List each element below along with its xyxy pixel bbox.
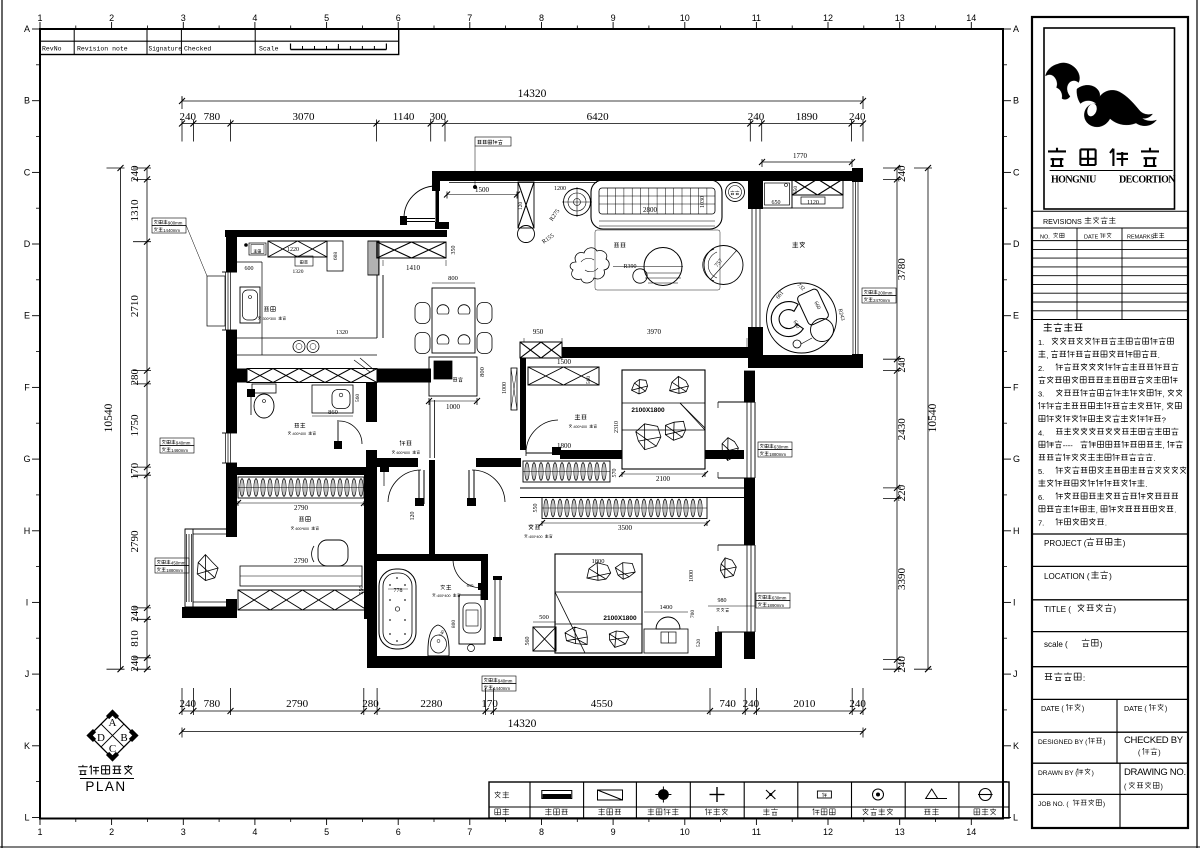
svg-text:650: 650 xyxy=(772,200,781,206)
svg-text:.: . xyxy=(1154,454,1156,463)
svg-text:1: 1 xyxy=(37,827,42,837)
svg-text:): ) xyxy=(1113,605,1116,614)
svg-text:H: H xyxy=(1013,526,1020,536)
svg-text:DATE (: DATE ( xyxy=(1124,705,1147,713)
svg-text:14: 14 xyxy=(966,827,976,837)
svg-text:2.: 2. xyxy=(1038,364,1044,373)
svg-text:240: 240 xyxy=(129,605,141,622)
svg-text:570: 570 xyxy=(612,469,618,478)
svg-text:1200: 1200 xyxy=(554,186,566,192)
svg-text:240: 240 xyxy=(129,655,141,672)
svg-text:800: 800 xyxy=(479,367,486,377)
svg-text:220: 220 xyxy=(896,484,908,501)
svg-text:A: A xyxy=(24,24,30,34)
svg-text:1320: 1320 xyxy=(293,269,304,275)
svg-text:450mm: 450mm xyxy=(171,560,186,565)
svg-text:11: 11 xyxy=(752,13,761,23)
svg-text:): ) xyxy=(1123,539,1126,548)
svg-text:13: 13 xyxy=(895,827,905,837)
svg-text:Revision note: Revision note xyxy=(77,46,128,53)
svg-text:200mm: 200mm xyxy=(878,290,893,295)
svg-text::400*400: :400*400 xyxy=(573,425,587,429)
svg-text:780: 780 xyxy=(204,698,221,710)
svg-text:3070: 3070 xyxy=(293,111,316,123)
svg-text:860: 860 xyxy=(328,409,338,416)
svg-text:14: 14 xyxy=(966,13,976,23)
svg-text:500: 500 xyxy=(539,614,549,621)
svg-text:900mm: 900mm xyxy=(168,220,183,225)
svg-text:REVISIONS: REVISIONS xyxy=(1043,218,1082,226)
svg-text:2430: 2430 xyxy=(896,418,908,441)
svg-text:2: 2 xyxy=(109,13,114,23)
svg-text:1460mm: 1460mm xyxy=(171,448,188,453)
svg-text:): ) xyxy=(1082,705,1084,713)
svg-text:6420: 6420 xyxy=(587,111,610,123)
svg-text:H: H xyxy=(24,526,31,536)
svg-text:F: F xyxy=(24,382,30,392)
svg-text:,: , xyxy=(1163,441,1165,450)
svg-text:240: 240 xyxy=(897,358,908,373)
svg-text:G: G xyxy=(23,454,30,464)
svg-text:2790: 2790 xyxy=(286,698,309,710)
svg-text:PLAN: PLAN xyxy=(85,779,126,794)
svg-text:1880mm: 1880mm xyxy=(166,568,183,573)
svg-text:240: 240 xyxy=(179,111,196,123)
svg-text:10540: 10540 xyxy=(103,403,115,432)
svg-text:): ) xyxy=(1161,783,1163,791)
svg-text:1500: 1500 xyxy=(475,186,490,194)
svg-text:950: 950 xyxy=(533,328,544,336)
svg-text:4.: 4. xyxy=(1038,428,1044,437)
svg-text:3780: 3780 xyxy=(896,258,908,281)
svg-text:2790: 2790 xyxy=(294,557,309,565)
svg-text:1890mm: 1890mm xyxy=(767,603,784,608)
svg-text:608: 608 xyxy=(333,252,339,261)
svg-text:1: 1 xyxy=(37,13,42,23)
svg-text:5: 5 xyxy=(324,13,329,23)
svg-text:560: 560 xyxy=(355,394,361,403)
svg-text:K: K xyxy=(24,741,30,751)
svg-text:.: . xyxy=(1105,519,1107,528)
svg-text::600*600: :600*600 xyxy=(295,527,309,531)
svg-text:13: 13 xyxy=(895,13,905,23)
svg-text:600: 600 xyxy=(245,266,254,272)
svg-text:1320: 1320 xyxy=(336,330,348,336)
svg-text:G: G xyxy=(1013,454,1020,464)
svg-text:L: L xyxy=(1013,813,1018,823)
svg-text:700: 700 xyxy=(690,610,696,619)
svg-text:610: 610 xyxy=(467,583,475,588)
svg-text:280: 280 xyxy=(129,369,141,386)
svg-text:10: 10 xyxy=(680,827,690,837)
svg-text:1800: 1800 xyxy=(592,558,605,565)
svg-text:240: 240 xyxy=(849,111,866,123)
svg-text:Checked: Checked xyxy=(184,46,211,53)
svg-text:9: 9 xyxy=(611,827,616,837)
svg-text:): ) xyxy=(1103,739,1105,746)
svg-text:120: 120 xyxy=(518,202,524,211)
svg-text:8: 8 xyxy=(539,13,544,23)
svg-text:11: 11 xyxy=(752,827,761,837)
svg-text:2790: 2790 xyxy=(294,504,309,512)
svg-text:1000: 1000 xyxy=(502,382,508,394)
svg-text:TITLE (: TITLE ( xyxy=(1044,605,1071,614)
svg-text:3.: 3. xyxy=(1038,390,1044,399)
svg-text:940mm: 940mm xyxy=(498,678,513,683)
svg-text:980: 980 xyxy=(718,598,727,604)
svg-text:J: J xyxy=(25,669,30,679)
svg-text:12: 12 xyxy=(823,13,833,23)
svg-text:D: D xyxy=(24,239,31,249)
svg-text:6.: 6. xyxy=(1038,493,1044,502)
svg-text:D: D xyxy=(1013,239,1020,249)
svg-text:2100: 2100 xyxy=(656,475,671,483)
svg-text:K: K xyxy=(1013,741,1019,751)
svg-text:1140: 1140 xyxy=(393,111,415,123)
svg-text:5.: 5. xyxy=(1038,467,1044,476)
svg-text:I: I xyxy=(1013,597,1016,607)
svg-text:C: C xyxy=(109,743,116,755)
svg-text:14320: 14320 xyxy=(518,88,547,100)
svg-text:3970: 3970 xyxy=(647,328,662,336)
svg-text:DRAWN BY (: DRAWN BY ( xyxy=(1038,770,1078,777)
svg-text:550: 550 xyxy=(533,504,539,513)
svg-text:14320: 14320 xyxy=(508,718,537,730)
svg-text:): ) xyxy=(1092,770,1094,777)
svg-text:3: 3 xyxy=(181,827,186,837)
svg-text:DESIGNED BY (: DESIGNED BY ( xyxy=(1038,739,1088,746)
svg-text:,: , xyxy=(1162,403,1164,412)
svg-text:240: 240 xyxy=(849,698,866,710)
svg-text:2790: 2790 xyxy=(129,530,141,553)
svg-text:F: F xyxy=(1013,382,1019,392)
svg-text:DRAWING NO.: DRAWING NO. xyxy=(1124,767,1186,778)
svg-text:4: 4 xyxy=(252,13,257,23)
svg-text:): ) xyxy=(1158,749,1160,757)
svg-text:A: A xyxy=(1013,24,1019,34)
svg-text:810: 810 xyxy=(129,630,141,647)
svg-text:1310: 1310 xyxy=(129,199,141,222)
svg-text:2: 2 xyxy=(109,827,114,837)
svg-text:800: 800 xyxy=(451,620,457,629)
svg-text:DECORTION: DECORTION xyxy=(1119,175,1176,186)
svg-text:7: 7 xyxy=(467,827,472,837)
svg-text:2800: 2800 xyxy=(643,206,658,214)
svg-text:DATE (: DATE ( xyxy=(1041,705,1064,713)
svg-text:PROJECT (: PROJECT ( xyxy=(1044,539,1087,548)
svg-text:5: 5 xyxy=(324,827,329,837)
svg-text:1000: 1000 xyxy=(689,570,695,582)
svg-text:630mm: 630mm xyxy=(774,444,789,449)
svg-text:): ) xyxy=(1109,572,1112,581)
svg-text:1120: 1120 xyxy=(807,200,819,206)
svg-text:550: 550 xyxy=(359,586,365,595)
svg-text:2100X1800: 2100X1800 xyxy=(603,615,637,622)
svg-text:1500: 1500 xyxy=(557,358,572,366)
svg-text:,: , xyxy=(1096,506,1098,515)
svg-text::600*600: :600*600 xyxy=(396,451,410,455)
svg-text:HONGNIU: HONGNIU xyxy=(1051,175,1096,186)
svg-text:170: 170 xyxy=(129,462,141,479)
svg-text:L: L xyxy=(24,813,29,823)
svg-text:740: 740 xyxy=(719,698,736,710)
svg-text::400*400: :400*400 xyxy=(528,535,542,539)
svg-text:LOCATION (: LOCATION ( xyxy=(1044,572,1090,581)
svg-text:650: 650 xyxy=(793,186,799,195)
svg-text:520: 520 xyxy=(696,639,702,648)
svg-text:.: . xyxy=(1174,506,1176,515)
svg-text:REMARKS: REMARKS xyxy=(1127,234,1155,240)
svg-text:3500: 3500 xyxy=(618,524,633,532)
svg-text:8: 8 xyxy=(539,827,544,837)
svg-text:2280: 2280 xyxy=(420,698,443,710)
svg-text:240: 240 xyxy=(896,165,908,182)
svg-text:1000: 1000 xyxy=(446,403,461,411)
svg-text:560: 560 xyxy=(586,376,592,385)
svg-text:240: 240 xyxy=(748,111,765,123)
svg-text:240: 240 xyxy=(129,165,141,182)
svg-text:2470mm: 2470mm xyxy=(873,298,890,303)
svg-text:240: 240 xyxy=(179,698,196,710)
svg-text:280: 280 xyxy=(362,698,379,710)
svg-text:scale (: scale ( xyxy=(1044,640,1068,649)
svg-text:1.: 1. xyxy=(1038,338,1044,347)
svg-text:9: 9 xyxy=(611,13,616,23)
svg-text:2100X1800: 2100X1800 xyxy=(631,407,665,414)
svg-text:JOB NO. (: JOB NO. ( xyxy=(1038,801,1069,808)
svg-text:Scale: Scale xyxy=(259,46,279,53)
svg-text:2310: 2310 xyxy=(614,421,620,433)
svg-text:1410: 1410 xyxy=(406,264,421,272)
svg-text:?: ? xyxy=(1162,415,1166,424)
svg-text:6: 6 xyxy=(396,13,401,23)
svg-text::: : xyxy=(1083,673,1085,683)
svg-text:240: 240 xyxy=(896,656,908,673)
svg-text:780: 780 xyxy=(204,111,221,123)
svg-text:1880mm: 1880mm xyxy=(769,452,786,457)
svg-text:4550: 4550 xyxy=(591,698,614,710)
svg-text:,: , xyxy=(1046,351,1048,360)
svg-text:300: 300 xyxy=(430,111,447,123)
svg-text::400*400: :400*400 xyxy=(292,432,306,436)
svg-text:12: 12 xyxy=(823,827,833,837)
svg-text:J: J xyxy=(1013,669,1018,679)
svg-text:R390: R390 xyxy=(623,264,636,270)
svg-text:10: 10 xyxy=(680,13,690,23)
svg-text:): ) xyxy=(1165,705,1167,713)
svg-text:800: 800 xyxy=(448,275,458,282)
svg-text:1770: 1770 xyxy=(793,152,808,160)
svg-text:I: I xyxy=(26,597,29,607)
svg-text:3: 3 xyxy=(181,13,186,23)
svg-text:E: E xyxy=(24,311,30,321)
svg-text:1750: 1750 xyxy=(129,414,141,437)
svg-text:RevNo: RevNo xyxy=(42,46,62,53)
svg-text:6: 6 xyxy=(396,827,401,837)
svg-text:630mm: 630mm xyxy=(772,595,787,600)
svg-text:1890: 1890 xyxy=(796,111,819,123)
svg-text:E: E xyxy=(1013,311,1019,321)
svg-text:1400: 1400 xyxy=(660,604,673,611)
svg-text:1030: 1030 xyxy=(700,196,706,208)
svg-text:----: ---- xyxy=(1063,441,1073,450)
svg-text:7: 7 xyxy=(467,13,472,23)
svg-text:B: B xyxy=(120,732,127,744)
svg-text:1440mm: 1440mm xyxy=(493,686,510,691)
svg-text:B: B xyxy=(1013,96,1019,106)
svg-text:): ) xyxy=(1100,640,1103,649)
svg-text:1800: 1800 xyxy=(557,442,572,450)
svg-text:,: , xyxy=(1163,390,1165,399)
svg-text:Signature: Signature xyxy=(149,46,183,53)
svg-text:C: C xyxy=(1013,167,1020,177)
svg-text:2010: 2010 xyxy=(793,698,816,710)
svg-text:4: 4 xyxy=(252,827,257,837)
svg-text:170: 170 xyxy=(481,698,498,710)
svg-text:120: 120 xyxy=(410,512,416,521)
svg-text:.: . xyxy=(1145,480,1147,489)
svg-text:D: D xyxy=(97,732,105,744)
svg-text:NO.: NO. xyxy=(1040,234,1050,240)
svg-text:): ) xyxy=(1103,801,1105,808)
svg-text:240: 240 xyxy=(743,698,760,710)
svg-text::300*300: :300*300 xyxy=(262,317,276,321)
svg-text:10540: 10540 xyxy=(927,403,939,432)
svg-text:A: A xyxy=(109,717,117,729)
svg-text:B: B xyxy=(24,96,30,106)
svg-text:7.: 7. xyxy=(1038,519,1044,528)
svg-text:CHECKED BY: CHECKED BY xyxy=(1124,735,1184,746)
svg-text:1220: 1220 xyxy=(287,247,299,253)
svg-text::400*400: :400*400 xyxy=(436,594,450,598)
svg-text:560: 560 xyxy=(525,637,531,646)
svg-text:.: . xyxy=(1158,351,1160,360)
svg-text:C: C xyxy=(24,167,31,177)
svg-text:350: 350 xyxy=(451,246,457,255)
svg-text:1440mm: 1440mm xyxy=(163,228,180,233)
svg-text:DATE: DATE xyxy=(1084,234,1099,240)
svg-text:940mm: 940mm xyxy=(176,440,191,445)
svg-text:2710: 2710 xyxy=(129,295,141,318)
svg-text:3390: 3390 xyxy=(896,568,908,591)
